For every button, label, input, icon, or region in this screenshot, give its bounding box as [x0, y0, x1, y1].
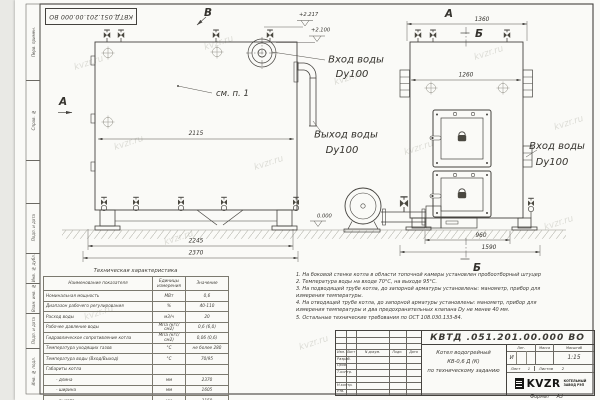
- elevation-2100: +2.100: [311, 28, 331, 34]
- note-line: 1. На боковой стенке котла в области топ…: [296, 272, 566, 279]
- spec-table: Наименование показателя Единицы измерени…: [43, 276, 229, 400]
- company-name: КОТЕЛЬНЫЙ ЗАВОД РЭП: [564, 380, 587, 388]
- notes-block: 1. На боковой стенке котла в области топ…: [296, 272, 566, 322]
- ground-hatch: [62, 230, 566, 239]
- outlet-elbow-pipe: [294, 62, 317, 126]
- tb-row-prov: Пров.: [337, 363, 356, 367]
- spec-row: - высотамм2150: [44, 396, 229, 400]
- tb-row-tkontr: Т.контр.: [337, 370, 356, 374]
- margin-cell: Подп. и дата: [26, 313, 40, 349]
- watermark-text: kvzr.ru: [473, 44, 505, 63]
- spec-row: Диапазон рабочего регулирования%40-110: [44, 301, 229, 312]
- lit-mass-scale-values: И 1:15: [507, 351, 594, 365]
- valve-icon: [104, 30, 110, 42]
- tb-row-razrab: Разраб.: [337, 357, 356, 361]
- valve-icon: [430, 30, 436, 42]
- elevation-2217: +2.217: [299, 12, 319, 18]
- product-name: Котел водогрейный КВ-0,6 Д (К) по технич…: [421, 344, 506, 395]
- dim-1360: 1360: [475, 17, 490, 23]
- spec-row: - длинамм2370: [44, 375, 229, 386]
- margin-cell: [26, 160, 40, 204]
- product-line: КВ-0,6 Д (К): [421, 358, 506, 367]
- kvzr-logo-icon: [515, 378, 524, 389]
- spec-row: Гидравлическое сопротивление котлаМПа (к…: [44, 333, 229, 344]
- top-stamp-number: КВТД.051.201.00.000 ВО: [49, 13, 133, 20]
- drain-valve-icon: [528, 198, 534, 211]
- inlet-label-side: Вход воды: [328, 55, 384, 66]
- spec-row: - ширинамм1605: [44, 385, 229, 396]
- product-line: Котел водогрейный: [421, 349, 506, 358]
- dim-1590: 1590: [482, 245, 497, 251]
- note-line: 4. На отводящей трубе котла, до запорной…: [296, 300, 566, 314]
- tb-header-data: Дата: [406, 350, 421, 354]
- blower-fan: [344, 188, 441, 232]
- side-flange-icon: [400, 70, 410, 97]
- margin-cell: Перв. примен.: [26, 4, 40, 81]
- dim-2245: 2245: [189, 239, 204, 245]
- margin-cell: Инв. № дубл.: [26, 253, 40, 284]
- spec-row: Номинальная мощностьМВт0,6: [44, 291, 229, 302]
- product-line: по техническому заданию: [421, 367, 506, 376]
- watermark-text: kvzr.ru: [553, 114, 585, 133]
- section-label-b-top: Б: [475, 28, 483, 40]
- valve-icon: [504, 30, 510, 42]
- drain-valve-icon: [101, 197, 107, 210]
- spec-table-block: Техническая характеристика Наименование …: [43, 268, 228, 400]
- spec-row: Температура воды (Вход/Выход)°С70/95: [44, 354, 229, 365]
- valve-icon: [415, 30, 421, 42]
- drain-valve-icon: [133, 197, 139, 210]
- door-handle-icon: [458, 132, 466, 141]
- door-latch-icon: [430, 136, 441, 140]
- drawing-sheet-page: kvzr.ru kvzr.ru kvzr.ru kvzr.ru kvzr.ru …: [0, 0, 600, 400]
- view-label-v: В: [204, 7, 212, 19]
- company-logo: KVZR КОТЕЛЬНЫЙ ЗАВОД РЭП: [507, 372, 594, 395]
- margin-column: Перв. примен. Справ. № Подп. и дата Инв.…: [26, 4, 40, 394]
- watermark-text: kvzr.ru: [73, 54, 105, 73]
- crosshair-mark-icon: [102, 47, 115, 60]
- lit-value: И: [507, 351, 516, 364]
- drain-valve-icon: [221, 197, 227, 210]
- spec-row: Расход водым3/ч20: [44, 312, 229, 323]
- drain-valve-icon: [178, 197, 184, 210]
- dim-1260: 1260: [459, 73, 474, 79]
- format-label: ФорматА3: [500, 395, 593, 400]
- door-latch-icon: [430, 194, 441, 198]
- spec-col-name: Наименование показателя: [44, 277, 153, 291]
- dim-2115: 2115: [189, 131, 204, 137]
- top-stamp-box: КВТД.051.201.00.000 ВО: [45, 8, 137, 25]
- crosshair-mark-icon: [425, 82, 438, 95]
- scale-value: 1:15: [554, 351, 594, 364]
- spec-row: Рабочее давление водыМПа (кгс/см2)0,6 (6…: [44, 322, 229, 333]
- note-line: 2. Температура воды на входе 70°С, на вы…: [296, 279, 566, 286]
- logo-text: KVZR: [527, 378, 561, 390]
- tb-header-podp: Подп.: [389, 350, 406, 354]
- dim-2370: 2370: [189, 251, 204, 257]
- margin-cell: Взам. инв. №: [26, 283, 40, 314]
- tb-row-nkontr: Н.контр.: [337, 383, 356, 387]
- tb-header-ndok: N докум.: [356, 350, 389, 354]
- inlet-dn-front: Dy100: [536, 157, 569, 168]
- note-line: 3. На подводящей трубе котла, до запорно…: [296, 286, 566, 300]
- view-label-a-front: А: [444, 8, 453, 20]
- tb-header-izm: Изм.: [336, 350, 346, 354]
- margin-cell: Инв. № подл.: [26, 348, 40, 394]
- spec-header-row: Наименование показателя Единицы измерени…: [44, 277, 229, 291]
- view-label-a-side: А: [58, 96, 67, 108]
- crosshair-mark-icon: [497, 82, 510, 95]
- note-line: 5. Остальные технические требования по О…: [296, 315, 566, 322]
- watermark-text: kvzr.ru: [298, 334, 330, 353]
- dim-960: 960: [475, 233, 486, 239]
- spec-row: Температура уходящих газов°Сне более 280: [44, 343, 229, 354]
- spec-col-value: Значение: [186, 277, 229, 291]
- inlet-dn-side: Dy100: [336, 69, 369, 80]
- watermark-text: kvzr.ru: [113, 134, 145, 153]
- title-block: Изм. Лист N докум. Подп. Дата Разраб. Пр…: [335, 330, 595, 396]
- mass-value: [536, 351, 554, 364]
- spec-row: Габариты котла: [44, 364, 229, 375]
- format-word: Формат: [530, 395, 549, 400]
- spec-table-title: Техническая характеристика: [43, 268, 228, 276]
- margin-cell: Подп. и дата: [26, 203, 40, 254]
- doc-number: КВТД .051.201.00.000 ВО: [421, 331, 594, 344]
- valve-icon: [400, 197, 408, 212]
- see-item-note: см. п. 1: [216, 89, 249, 99]
- tb-row-utv: Утв.: [337, 389, 356, 393]
- door-handle-icon: [458, 189, 466, 198]
- format-value: А3: [557, 395, 563, 400]
- tb-header-list: Лист: [346, 350, 356, 354]
- crosshair-mark-icon: [102, 116, 115, 129]
- outlet-label: Выход воды: [314, 130, 378, 141]
- drain-valve-icon: [293, 197, 299, 210]
- watermark-text: kvzr.ru: [403, 139, 435, 158]
- outlet-dn: Dy100: [326, 145, 359, 156]
- watermark-text: kvzr.ru: [253, 154, 285, 173]
- valve-icon: [118, 30, 124, 42]
- spec-col-units: Единицы измерения: [153, 277, 186, 291]
- margin-cell: Справ. №: [26, 80, 40, 161]
- inlet-label-front: Вход воды: [529, 141, 585, 152]
- side-flange-icon: [523, 70, 533, 97]
- title-block-right: Лит. Масса Масштаб И 1:15 Лист 1 Листов …: [506, 344, 594, 395]
- elevation-zero: 0.000: [317, 214, 333, 220]
